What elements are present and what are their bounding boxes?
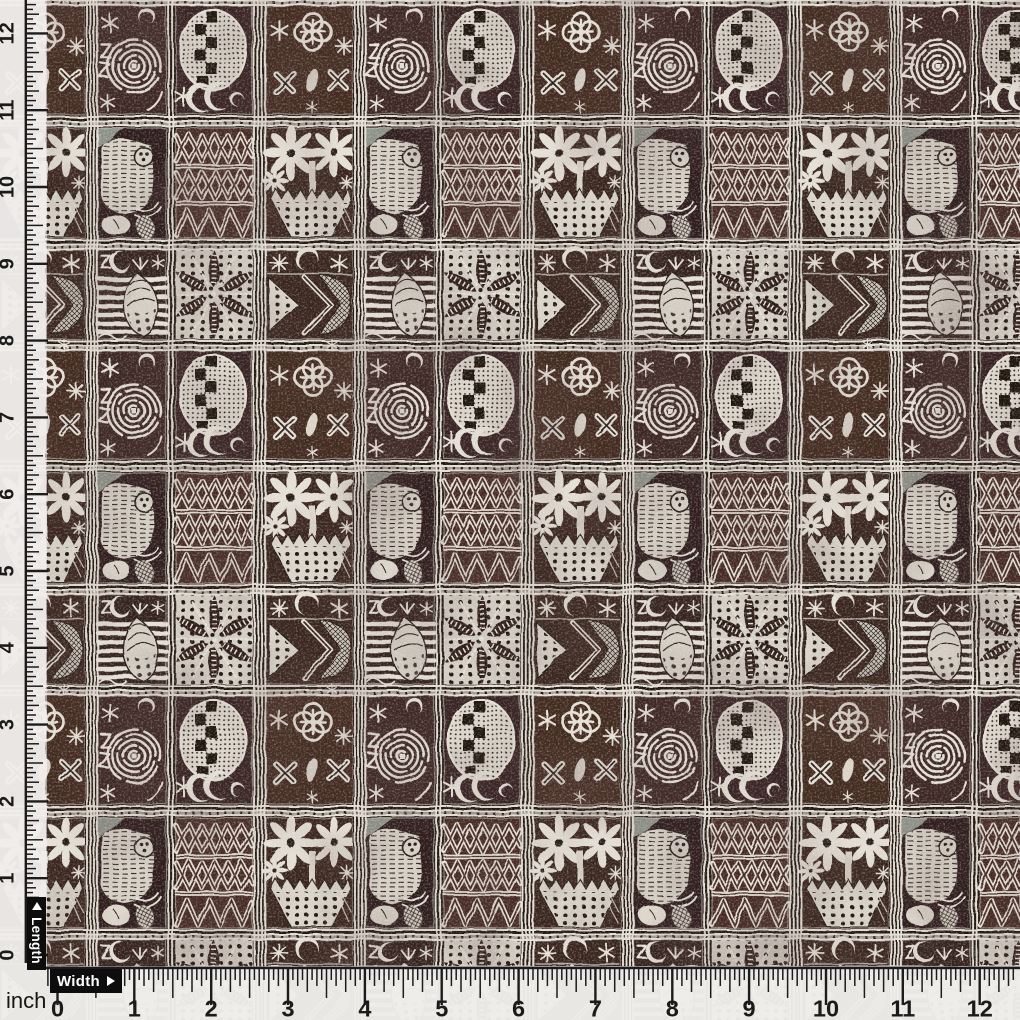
up-arrow-icon xyxy=(32,902,42,910)
ruler-number: 12 xyxy=(967,996,993,1020)
ruler-number: 4 xyxy=(358,996,371,1020)
ruler-number: 6 xyxy=(512,996,525,1020)
ruler-number: 3 xyxy=(281,996,294,1020)
ruler-number: 0 xyxy=(51,996,64,1020)
ruler-number: 12 xyxy=(0,22,19,44)
ruler-number: 3 xyxy=(0,719,19,730)
ruler-number: 5 xyxy=(0,565,19,576)
left-ruler-baseline xyxy=(25,0,27,963)
ruler-number: 10 xyxy=(0,176,19,198)
left-ruler-body xyxy=(0,0,47,966)
ruler-number: 7 xyxy=(589,996,602,1020)
ruler-number: 7 xyxy=(0,412,19,423)
ruler-number: 9 xyxy=(0,258,19,269)
width-label-text: Width xyxy=(57,973,100,990)
ruler-number: 11 xyxy=(0,100,19,121)
fabric-swatch-photo: 0123456789101112 0123456789101112 Length… xyxy=(0,0,1020,1020)
unit-label: inch xyxy=(6,988,46,1014)
ruler-number: 9 xyxy=(743,996,756,1020)
ruler-number: 1 xyxy=(0,873,19,884)
length-label-text: Length xyxy=(29,917,44,964)
right-arrow-icon xyxy=(107,976,115,986)
length-label: Length xyxy=(27,897,46,970)
ruler-number: 4 xyxy=(0,641,19,653)
ruler-number: 6 xyxy=(0,489,19,500)
bottom-ruler-baseline xyxy=(46,967,1020,970)
ruler-number: 10 xyxy=(813,996,839,1020)
ruler-number: 8 xyxy=(666,996,679,1020)
width-label: Width xyxy=(50,969,122,993)
ruler-number: 11 xyxy=(890,996,915,1020)
ruler-number: 5 xyxy=(435,996,448,1020)
ruler-number: 1 xyxy=(128,996,141,1020)
ruler-number: 0 xyxy=(0,949,19,960)
rulers-layer: 0123456789101112 0123456789101112 xyxy=(0,0,1020,1020)
ruler-number: 2 xyxy=(205,996,218,1020)
ruler-number: 8 xyxy=(0,335,19,346)
ruler-number: 2 xyxy=(0,796,19,807)
